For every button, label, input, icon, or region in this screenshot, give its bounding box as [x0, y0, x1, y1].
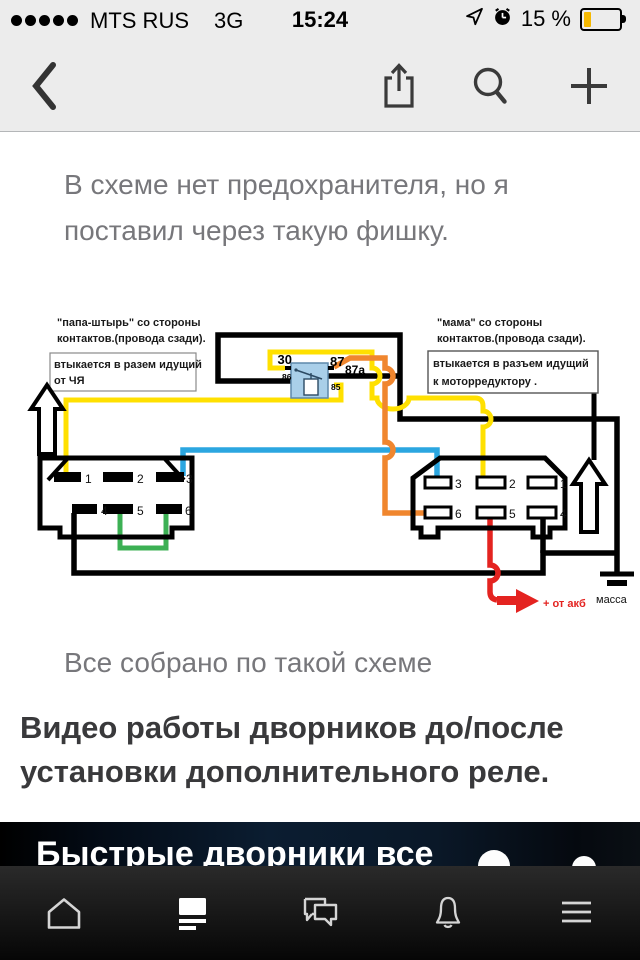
thumbnail-logo-circle	[478, 850, 510, 866]
back-button[interactable]	[14, 40, 74, 131]
tab-comments[interactable]	[256, 866, 384, 960]
svg-text:контактов.(провода сзади).: контактов.(провода сзади).	[437, 333, 586, 345]
phone-screen: MTS RUS 3G 15:24 15 %	[0, 0, 640, 960]
svg-text:5: 5	[137, 504, 144, 518]
browser-toolbar	[0, 40, 640, 132]
wiring-diagram: "папа-штырь" со стороны контактов.(прово…	[0, 300, 640, 630]
share-button[interactable]	[372, 40, 426, 131]
relay-pin-30: 30	[278, 352, 292, 367]
thumbnail-shape	[572, 856, 596, 866]
right-connector-note: "мама" со стороны	[437, 317, 542, 329]
video-section-heading: Видео работы дворников до/после установк…	[20, 706, 624, 794]
svg-text:6: 6	[185, 504, 192, 518]
svg-text:5: 5	[509, 507, 516, 521]
up-arrow-right	[573, 460, 605, 532]
video-thumbnail[interactable]: Быстрые дворники все	[0, 822, 640, 866]
svg-text:контактов.(провода сзади).: контактов.(провода сзади).	[57, 333, 206, 345]
svg-text:4: 4	[101, 504, 108, 518]
left-connector-note: "папа-штырь" со стороны	[57, 317, 201, 329]
tab-home[interactable]	[0, 866, 128, 960]
battery-percent-label: 15 %	[521, 6, 571, 32]
relay-pin-85: 85	[331, 382, 341, 392]
svg-text:втыкается в разъем идущий: втыкается в разъем идущий	[433, 358, 589, 370]
article-paragraph: В схеме нет предохранителя, но я постави…	[64, 162, 594, 254]
add-tab-button[interactable]	[562, 40, 616, 131]
svg-text:2: 2	[509, 477, 516, 491]
relay-pin-87a: 87a	[345, 363, 365, 377]
ground-symbol	[600, 574, 634, 583]
svg-text:3: 3	[186, 472, 193, 486]
alarm-clock-icon	[493, 7, 512, 31]
svg-text:2: 2	[137, 472, 144, 486]
wire-blue-pin3-to-pin3	[183, 450, 437, 477]
svg-text:от ЧЯ: от ЧЯ	[54, 375, 85, 387]
battery-arrow	[497, 589, 539, 613]
svg-text:6: 6	[455, 507, 462, 521]
relay-pin-87: 87	[330, 354, 344, 369]
tab-notifications[interactable]	[384, 866, 512, 960]
video-title: Быстрые дворники все	[36, 835, 433, 866]
wire-green-pin5-pin6	[120, 514, 166, 548]
battery-icon	[580, 8, 622, 31]
svg-text:втыкается в разем идущий: втыкается в разем идущий	[54, 359, 202, 371]
location-arrow-icon	[465, 7, 484, 31]
status-bar: MTS RUS 3G 15:24 15 %	[0, 0, 640, 40]
search-button[interactable]	[464, 40, 518, 131]
ground-label: масса	[596, 594, 628, 606]
svg-text:1: 1	[85, 472, 92, 486]
battery-label: + от акб	[543, 598, 586, 610]
svg-text:1: 1	[560, 477, 567, 491]
battery-fill	[584, 12, 591, 27]
app-tab-bar	[0, 866, 640, 960]
diagram-caption: Все собрано по такой схеме	[64, 647, 604, 679]
relay-pin-86: 86	[282, 372, 292, 382]
up-arrow-left	[31, 385, 63, 454]
tab-menu[interactable]	[512, 866, 640, 960]
left-connector: 1 2 3 4 5 6	[40, 458, 193, 537]
svg-text:к моторредуктору .: к моторредуктору .	[433, 376, 537, 388]
svg-text:3: 3	[455, 477, 462, 491]
svg-text:4: 4	[560, 507, 567, 521]
tab-feed-active[interactable]	[128, 866, 256, 960]
